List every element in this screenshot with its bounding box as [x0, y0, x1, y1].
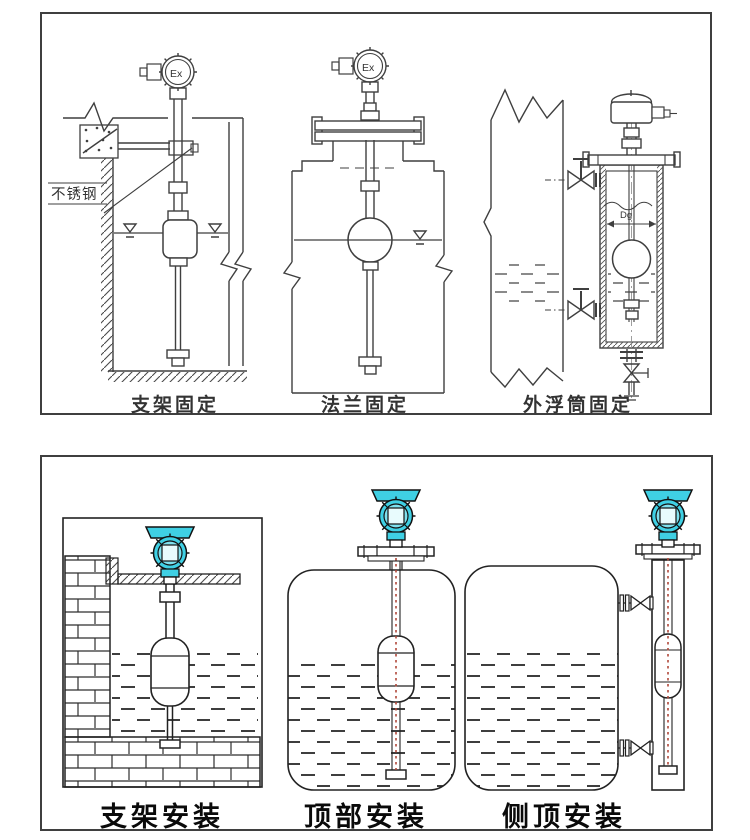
fixing-methods-panel: Ex — [40, 12, 712, 415]
ex-transmitter-head-icon: Ex — [140, 53, 197, 91]
installation-methods-drawing — [42, 457, 711, 829]
figure-bracket-installation — [63, 518, 262, 787]
compact-transmitter-head-icon — [611, 90, 677, 123]
diameter-label: Dg — [620, 210, 632, 221]
figure-bracket-fixing: Ex — [48, 53, 251, 382]
figure-external-chamber-fixing: Dg — [484, 90, 680, 400]
material-label: 不锈钢 — [51, 186, 98, 203]
caption-top-installation: 顶部安装 — [304, 795, 428, 834]
caption-external-chamber-fixing: 外浮筒固定 — [523, 390, 633, 417]
caption-flange-fixing: 法兰固定 — [321, 390, 409, 417]
fixing-methods-drawing: Ex — [42, 14, 710, 413]
caption-bracket-fixing: 支架固定 — [131, 390, 219, 417]
figure-top-installation — [288, 490, 455, 790]
caption-side-top-installation: 侧顶安装 — [502, 795, 626, 834]
ex-transmitter-head-icon: Ex — [332, 47, 389, 85]
figure-flange-fixing: Ex — [284, 47, 452, 393]
installation-methods-panel — [40, 455, 713, 831]
valve-icon — [618, 595, 653, 611]
ex-label: Ex — [362, 62, 375, 74]
ex-label: Ex — [170, 68, 183, 80]
figure-side-top-installation — [465, 490, 700, 790]
caption-bracket-installation: 支架安装 — [100, 795, 224, 834]
installation-diagram-page: Ex — [0, 0, 750, 840]
